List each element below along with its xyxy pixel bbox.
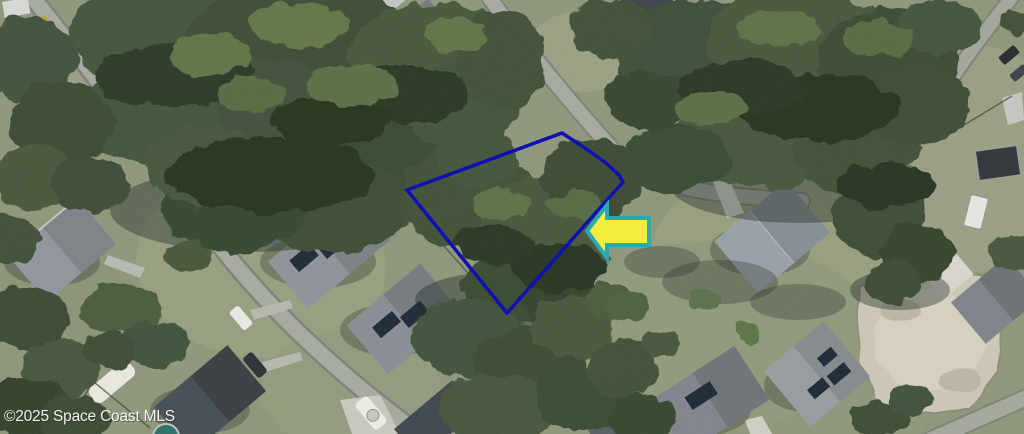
aerial-photo: ©2025 Space Coast MLS ©2025 Space Coast … bbox=[0, 0, 1024, 434]
copyright-watermark: ©2025 Space Coast MLS bbox=[4, 408, 175, 425]
aerial-map-image: ©2025 Space Coast MLS ©2025 Space Coast … bbox=[0, 0, 1024, 434]
photo-grain bbox=[0, 0, 1024, 434]
